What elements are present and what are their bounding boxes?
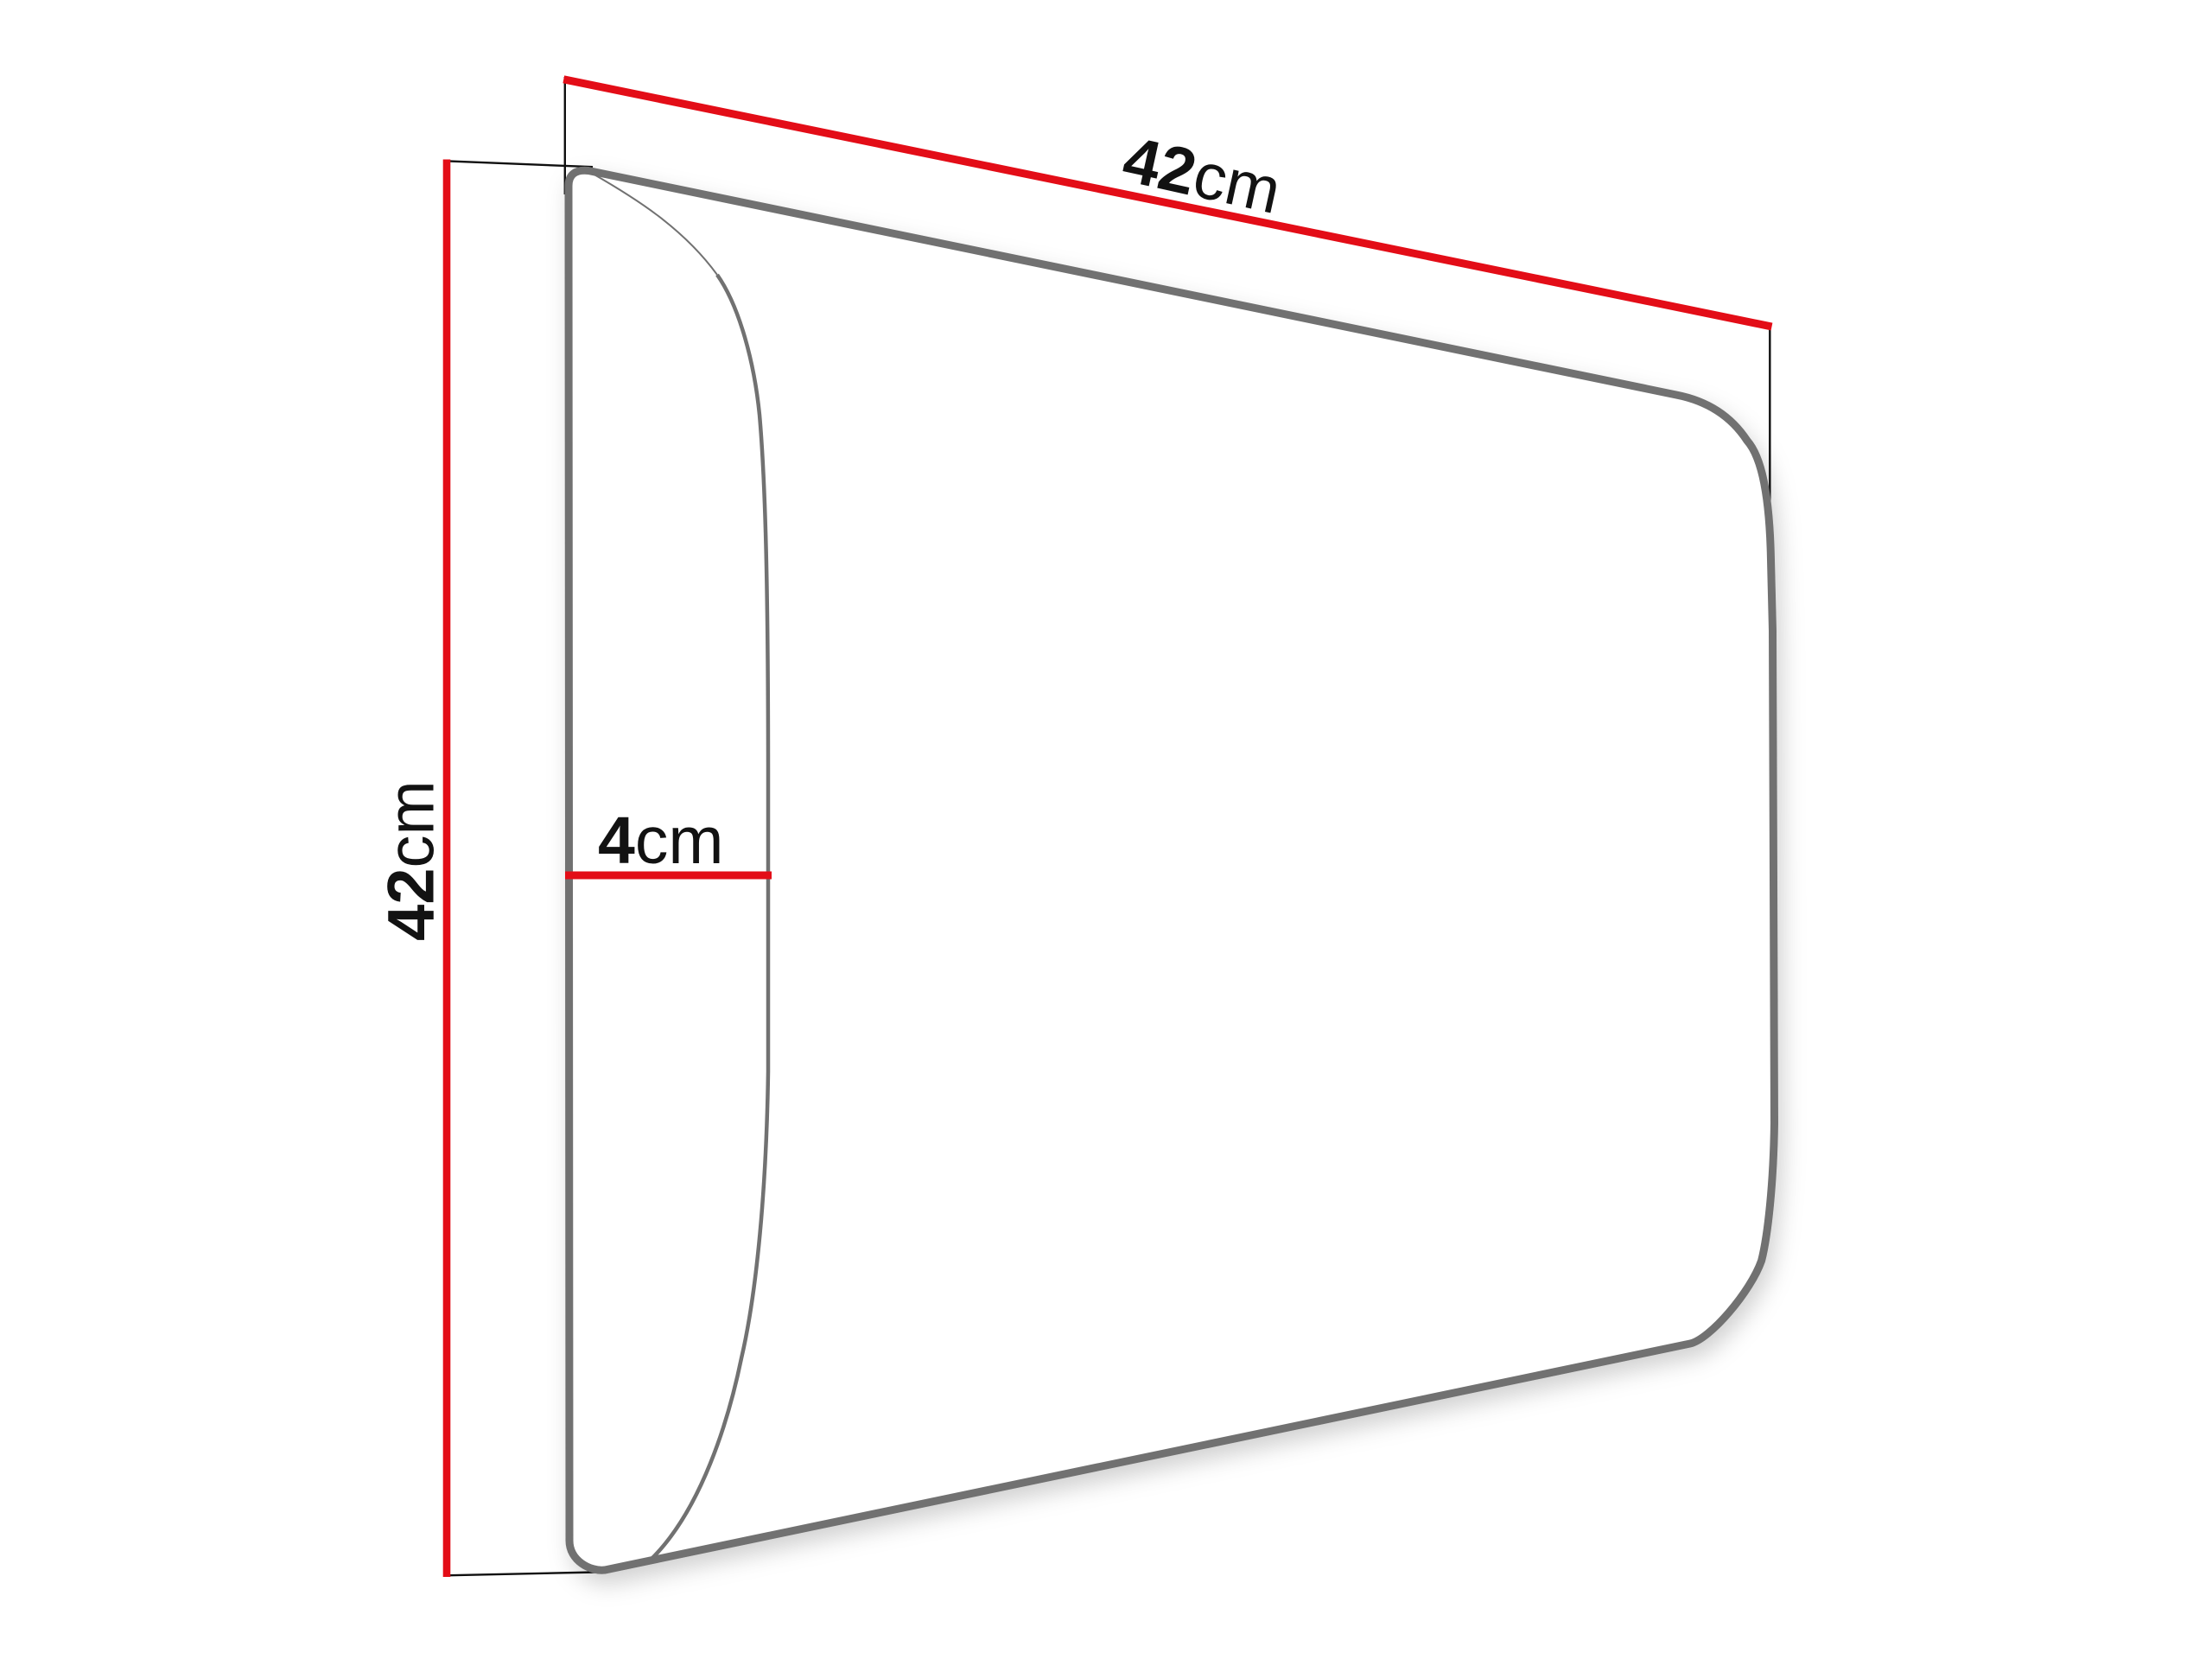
svg-text:42cm: 42cm [375, 780, 448, 941]
svg-text:4cm: 4cm [598, 804, 723, 878]
